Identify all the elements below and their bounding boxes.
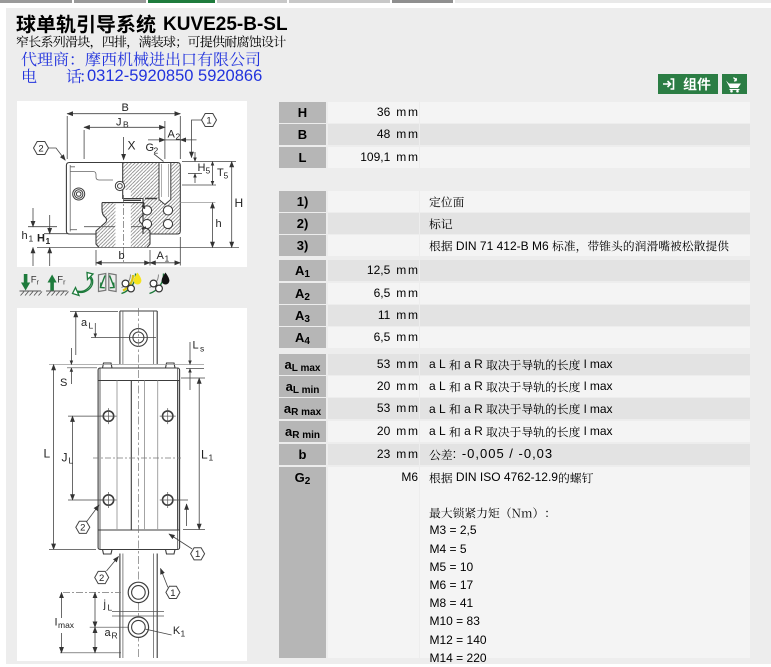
svg-text:L: L: [108, 603, 113, 613]
svg-text:r: r: [63, 280, 66, 287]
svg-text:1: 1: [29, 234, 34, 244]
svg-text:h: h: [22, 230, 28, 242]
svg-text:J: J: [116, 117, 122, 129]
svg-text:b: b: [119, 250, 125, 262]
svg-text:L: L: [89, 321, 94, 331]
svg-text:L: L: [201, 447, 208, 461]
svg-text:A: A: [157, 250, 165, 262]
svg-text:S: S: [60, 377, 67, 389]
svg-text:L: L: [44, 446, 51, 460]
svg-text:2: 2: [38, 143, 43, 154]
svg-text:B: B: [123, 120, 129, 130]
svg-text:5: 5: [206, 166, 211, 176]
svg-text:s: s: [200, 344, 204, 354]
svg-text:1: 1: [181, 629, 186, 639]
svg-text:H: H: [37, 233, 45, 245]
svg-text:h: h: [216, 218, 222, 230]
svg-text:max: max: [58, 620, 75, 630]
svg-text:1: 1: [209, 453, 214, 463]
svg-text:2: 2: [154, 146, 159, 156]
svg-text:a: a: [81, 317, 88, 329]
svg-text:1: 1: [170, 588, 175, 599]
svg-text:J: J: [62, 450, 68, 464]
svg-text:5: 5: [224, 171, 229, 181]
svg-text:X: X: [128, 138, 136, 152]
svg-text:1: 1: [206, 115, 211, 126]
svg-text:H: H: [235, 196, 244, 210]
svg-text:L: L: [193, 340, 199, 352]
svg-text:1: 1: [46, 236, 51, 246]
svg-text:R: R: [112, 631, 118, 641]
svg-text:a: a: [105, 627, 112, 639]
svg-text:1: 1: [195, 549, 200, 560]
svg-text:B: B: [122, 102, 129, 114]
svg-text:2: 2: [176, 132, 181, 142]
svg-text:H: H: [198, 162, 206, 174]
svg-text:2: 2: [80, 523, 85, 534]
svg-text:j: j: [103, 599, 106, 611]
svg-text:2: 2: [99, 573, 104, 584]
svg-text:1: 1: [165, 254, 170, 264]
svg-text:A: A: [168, 129, 176, 141]
svg-text:r: r: [37, 280, 40, 287]
svg-text:L: L: [69, 456, 74, 466]
